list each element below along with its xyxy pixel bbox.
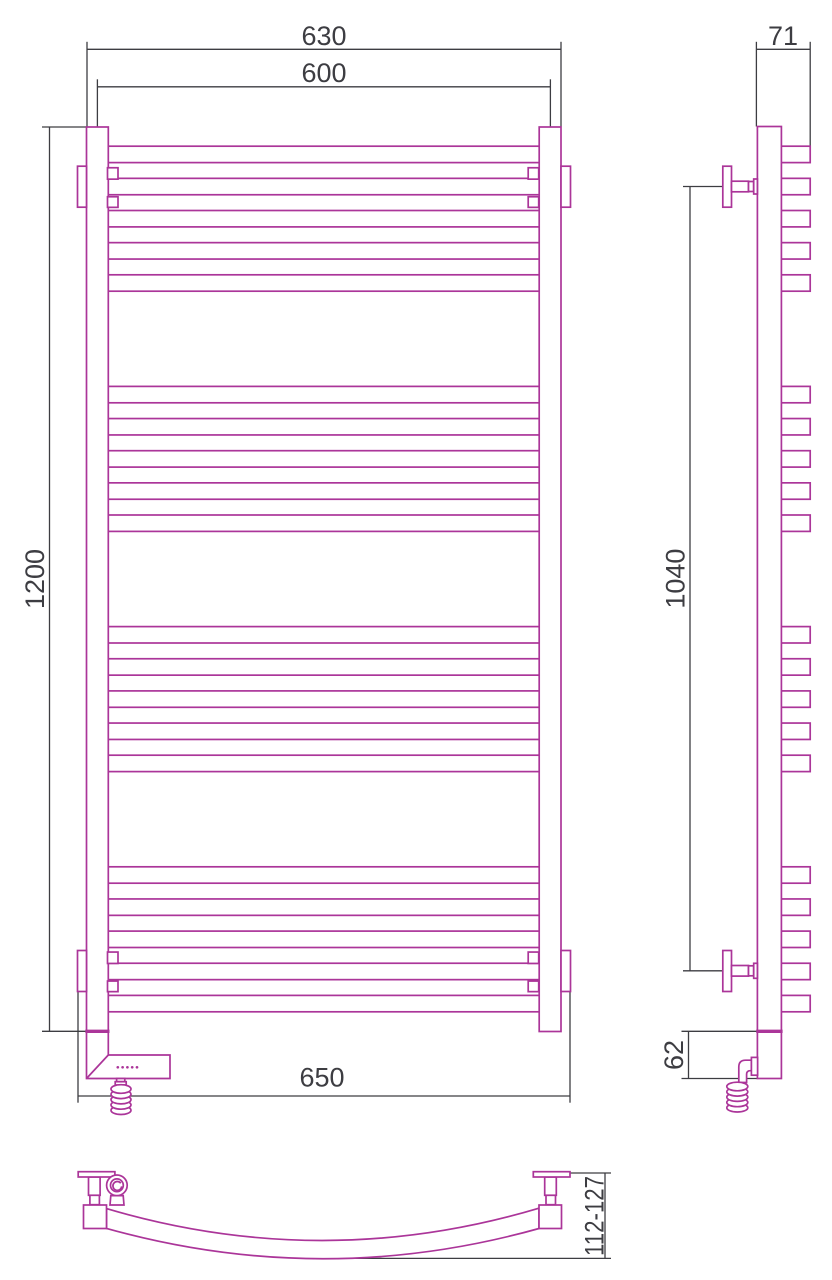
wall-bracket: [78, 166, 87, 207]
towel-bar: [107, 178, 541, 194]
fitting-base: [110, 1196, 124, 1205]
towel-bar-end: [781, 483, 810, 499]
towel-bar: [107, 963, 541, 979]
dim-depth-label: 71: [768, 21, 798, 51]
towel-bar-end: [781, 419, 810, 435]
dim-top-width-label: 630: [301, 21, 346, 51]
bracket-stem: [545, 1177, 557, 1195]
plan-fitting: [107, 1175, 128, 1205]
towel-bar: [107, 995, 541, 1011]
towel-bar: [107, 723, 541, 739]
bracket-arm: [732, 966, 749, 977]
side-view: [723, 127, 810, 1112]
mount-tab: [528, 197, 539, 208]
dim-wall-clearance-label: 112-127: [580, 1176, 610, 1256]
bracket-joint: [754, 179, 758, 194]
towel-bar-end: [781, 275, 810, 291]
cable-elbow: [739, 1060, 752, 1082]
dim-bracket-span-label: 1040: [661, 549, 691, 609]
towel-bar-end: [781, 211, 810, 227]
cable-coil-loop: [111, 1085, 131, 1094]
towel-bar-end: [781, 627, 810, 643]
towel-bar: [107, 146, 541, 162]
towel-bar: [107, 451, 541, 467]
bottom-view: [78, 1172, 570, 1259]
mount-tab: [108, 981, 119, 992]
towel-bar-end: [781, 931, 810, 947]
towel-bar: [107, 691, 541, 707]
bracket-wall-plate: [78, 1172, 115, 1177]
side-bar-ends: [781, 146, 810, 1012]
towel-bar-end: [781, 451, 810, 467]
towel-bar-end: [781, 867, 810, 883]
towel-bar-end: [781, 963, 810, 979]
mount-tab: [108, 168, 119, 179]
led-dot: [131, 1066, 134, 1069]
bracket-joint: [754, 963, 758, 978]
curved-bar-section: [107, 1208, 540, 1259]
towel-bar: [107, 211, 541, 227]
front-bars: [107, 146, 541, 1012]
towel-bar-end: [781, 755, 810, 771]
towel-bar-end: [781, 515, 810, 531]
side-wall-bracket-top: [723, 166, 758, 207]
towel-bar-end: [781, 899, 810, 915]
post-cross-section-right: [539, 1205, 562, 1229]
power-cable-front: [111, 1079, 131, 1115]
mount-tab: [528, 981, 539, 992]
mount-tab: [528, 168, 539, 179]
cable-coil-loop: [727, 1082, 748, 1091]
front-right-post: [539, 127, 561, 1032]
towel-bar-end: [781, 146, 810, 162]
towel-bar-end: [781, 386, 810, 402]
heater-unit-side: [757, 1032, 781, 1079]
bracket-wall-plate: [533, 1172, 570, 1177]
cable-elbow-flange: [751, 1057, 757, 1075]
towel-bar: [107, 899, 541, 915]
bracket-flange: [723, 166, 732, 207]
wall-bracket: [561, 951, 571, 992]
towel-bar-end: [781, 691, 810, 707]
towel-bar: [107, 386, 541, 402]
plan-bracket-right: [533, 1172, 570, 1205]
towel-bar: [107, 419, 541, 435]
led-dot: [136, 1066, 139, 1069]
bracket-foot: [90, 1195, 100, 1204]
led-dot: [126, 1066, 129, 1069]
towel-bar: [107, 515, 541, 531]
towel-bar: [107, 243, 541, 259]
side-wall-bracket-bottom: [723, 951, 758, 992]
towel-bar-end: [781, 995, 810, 1011]
towel-bar: [107, 755, 541, 771]
towel-bar: [107, 931, 541, 947]
bracket-arm: [732, 181, 749, 192]
power-cable-side: [727, 1057, 758, 1112]
bracket-flange: [723, 951, 732, 992]
heater-unit-front: [87, 1031, 171, 1079]
mount-tab: [108, 952, 119, 963]
dim-heater-height-label: 62: [659, 1040, 689, 1070]
led-dot: [121, 1066, 124, 1069]
towel-bar: [107, 659, 541, 675]
towel-bar-end: [781, 723, 810, 739]
wall-bracket: [561, 166, 571, 207]
towel-bar: [107, 867, 541, 883]
towel-bar-end: [781, 659, 810, 675]
towel-bar-end: [781, 243, 810, 259]
mount-tab: [108, 197, 119, 208]
dim-center-width-label: 600: [301, 58, 346, 88]
mount-tab: [528, 952, 539, 963]
wall-bracket: [78, 951, 87, 992]
towel-bar-end: [781, 178, 810, 194]
led-dot: [116, 1066, 119, 1069]
side-post: [757, 127, 781, 1032]
dim-height-label: 1200: [20, 549, 50, 609]
bracket-stem: [89, 1177, 101, 1195]
dim-overall-width-label: 650: [299, 1063, 344, 1093]
front-left-post: [87, 127, 109, 1032]
post-cross-section-left: [84, 1205, 107, 1229]
towel-bar: [107, 483, 541, 499]
front-view: [78, 127, 571, 1114]
bracket-foot: [546, 1195, 556, 1204]
towel-bar: [107, 627, 541, 643]
towel-bar: [107, 275, 541, 291]
technical-drawing-canvas: 630 600 1200 650: [0, 0, 832, 1280]
